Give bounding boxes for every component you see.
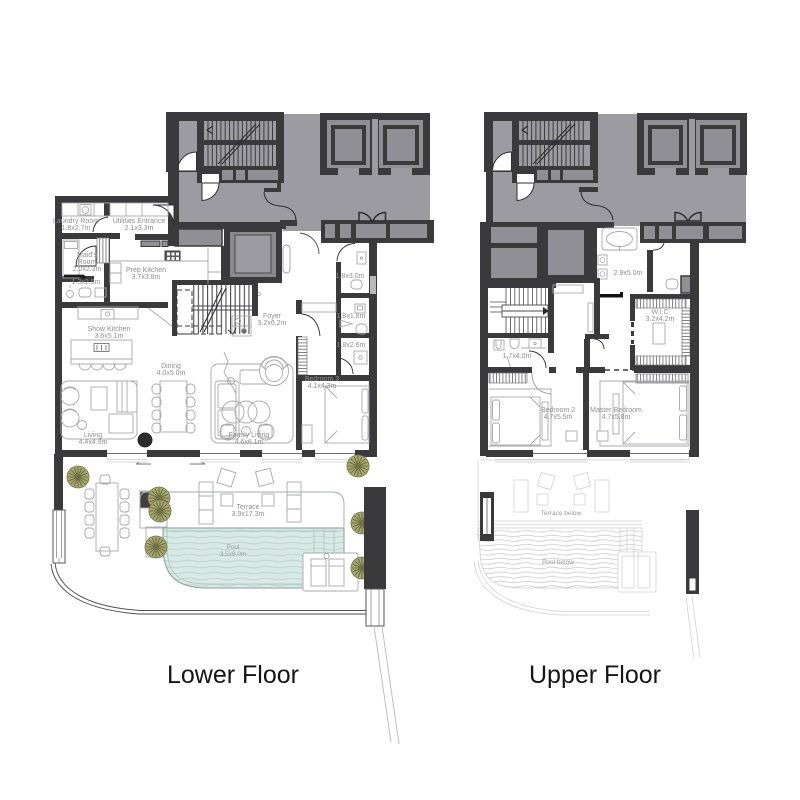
svg-text:3.2x6.2m: 3.2x6.2m	[258, 320, 287, 327]
svg-text:Upper Floor: Upper Floor	[529, 661, 661, 689]
svg-text:Laundry Room: Laundry Room	[53, 218, 99, 225]
svg-text:Show Kitchen: Show Kitchen	[88, 326, 131, 333]
svg-text:4.1x4.3m: 4.1x4.3m	[308, 383, 337, 390]
svg-text:1.8x2.7m: 1.8x2.7m	[62, 225, 91, 232]
svg-text:W.I.C: W.I.C	[651, 309, 668, 316]
svg-text:3.7x3.8m: 3.7x3.8m	[132, 274, 161, 281]
svg-text:Bedroom 3: Bedroom 3	[305, 376, 339, 383]
svg-text:3.5x8.0m: 3.5x8.0m	[220, 551, 247, 558]
svg-text:Dining: Dining	[161, 363, 181, 370]
svg-text:Room: Room	[78, 259, 97, 266]
svg-text:Living: Living	[84, 432, 102, 439]
svg-text:4.4x4.9m: 4.4x4.9m	[79, 439, 108, 446]
svg-text:1.3x2.5m: 1.3x2.5m	[72, 279, 101, 286]
svg-text:3.9x17.3m: 3.9x17.3m	[232, 511, 265, 518]
svg-text:3.6x5.1m: 3.6x5.1m	[95, 333, 124, 340]
svg-text:Prep Kitchen: Prep Kitchen	[126, 267, 166, 274]
svg-text:1.7x4.0m: 1.7x4.0m	[503, 353, 532, 360]
svg-text:Utilities Entrance: Utilities Entrance	[113, 218, 166, 225]
svg-text:2.9x5.0m: 2.9x5.0m	[614, 270, 643, 277]
svg-text:1.8x2.6m: 1.8x2.6m	[337, 342, 366, 349]
svg-text:Maid's: Maid's	[77, 252, 98, 259]
svg-text:Pool below: Pool below	[542, 559, 574, 566]
svg-text:4.7x5.8m: 4.7x5.8m	[602, 414, 631, 421]
svg-text:2.1x3.3m: 2.1x3.3m	[125, 225, 154, 232]
svg-text:4.7x5.5m: 4.7x5.5m	[544, 414, 573, 421]
svg-text:2.0x2.3m: 2.0x2.3m	[73, 266, 102, 273]
svg-text:Lower Floor: Lower Floor	[167, 661, 299, 689]
svg-text:Foyer: Foyer	[263, 313, 282, 320]
svg-text:3.2x4.2m: 3.2x4.2m	[646, 316, 675, 323]
svg-text:1.8x1.8m: 1.8x1.8m	[337, 313, 366, 320]
svg-text:Master Bedroom: Master Bedroom	[590, 407, 642, 414]
svg-text:4.0x5.0m: 4.0x5.0m	[157, 370, 186, 377]
svg-text:1.8x3.0m: 1.8x3.0m	[336, 273, 365, 280]
svg-text:Pool: Pool	[226, 544, 240, 551]
svg-text:Family Living: Family Living	[229, 432, 270, 439]
svg-text:Terrace below: Terrace below	[541, 510, 582, 517]
svg-text:Terrace: Terrace	[236, 504, 259, 511]
svg-text:Bedroom 2: Bedroom 2	[541, 407, 575, 414]
svg-text:4.6x6.1m: 4.6x6.1m	[235, 439, 264, 446]
